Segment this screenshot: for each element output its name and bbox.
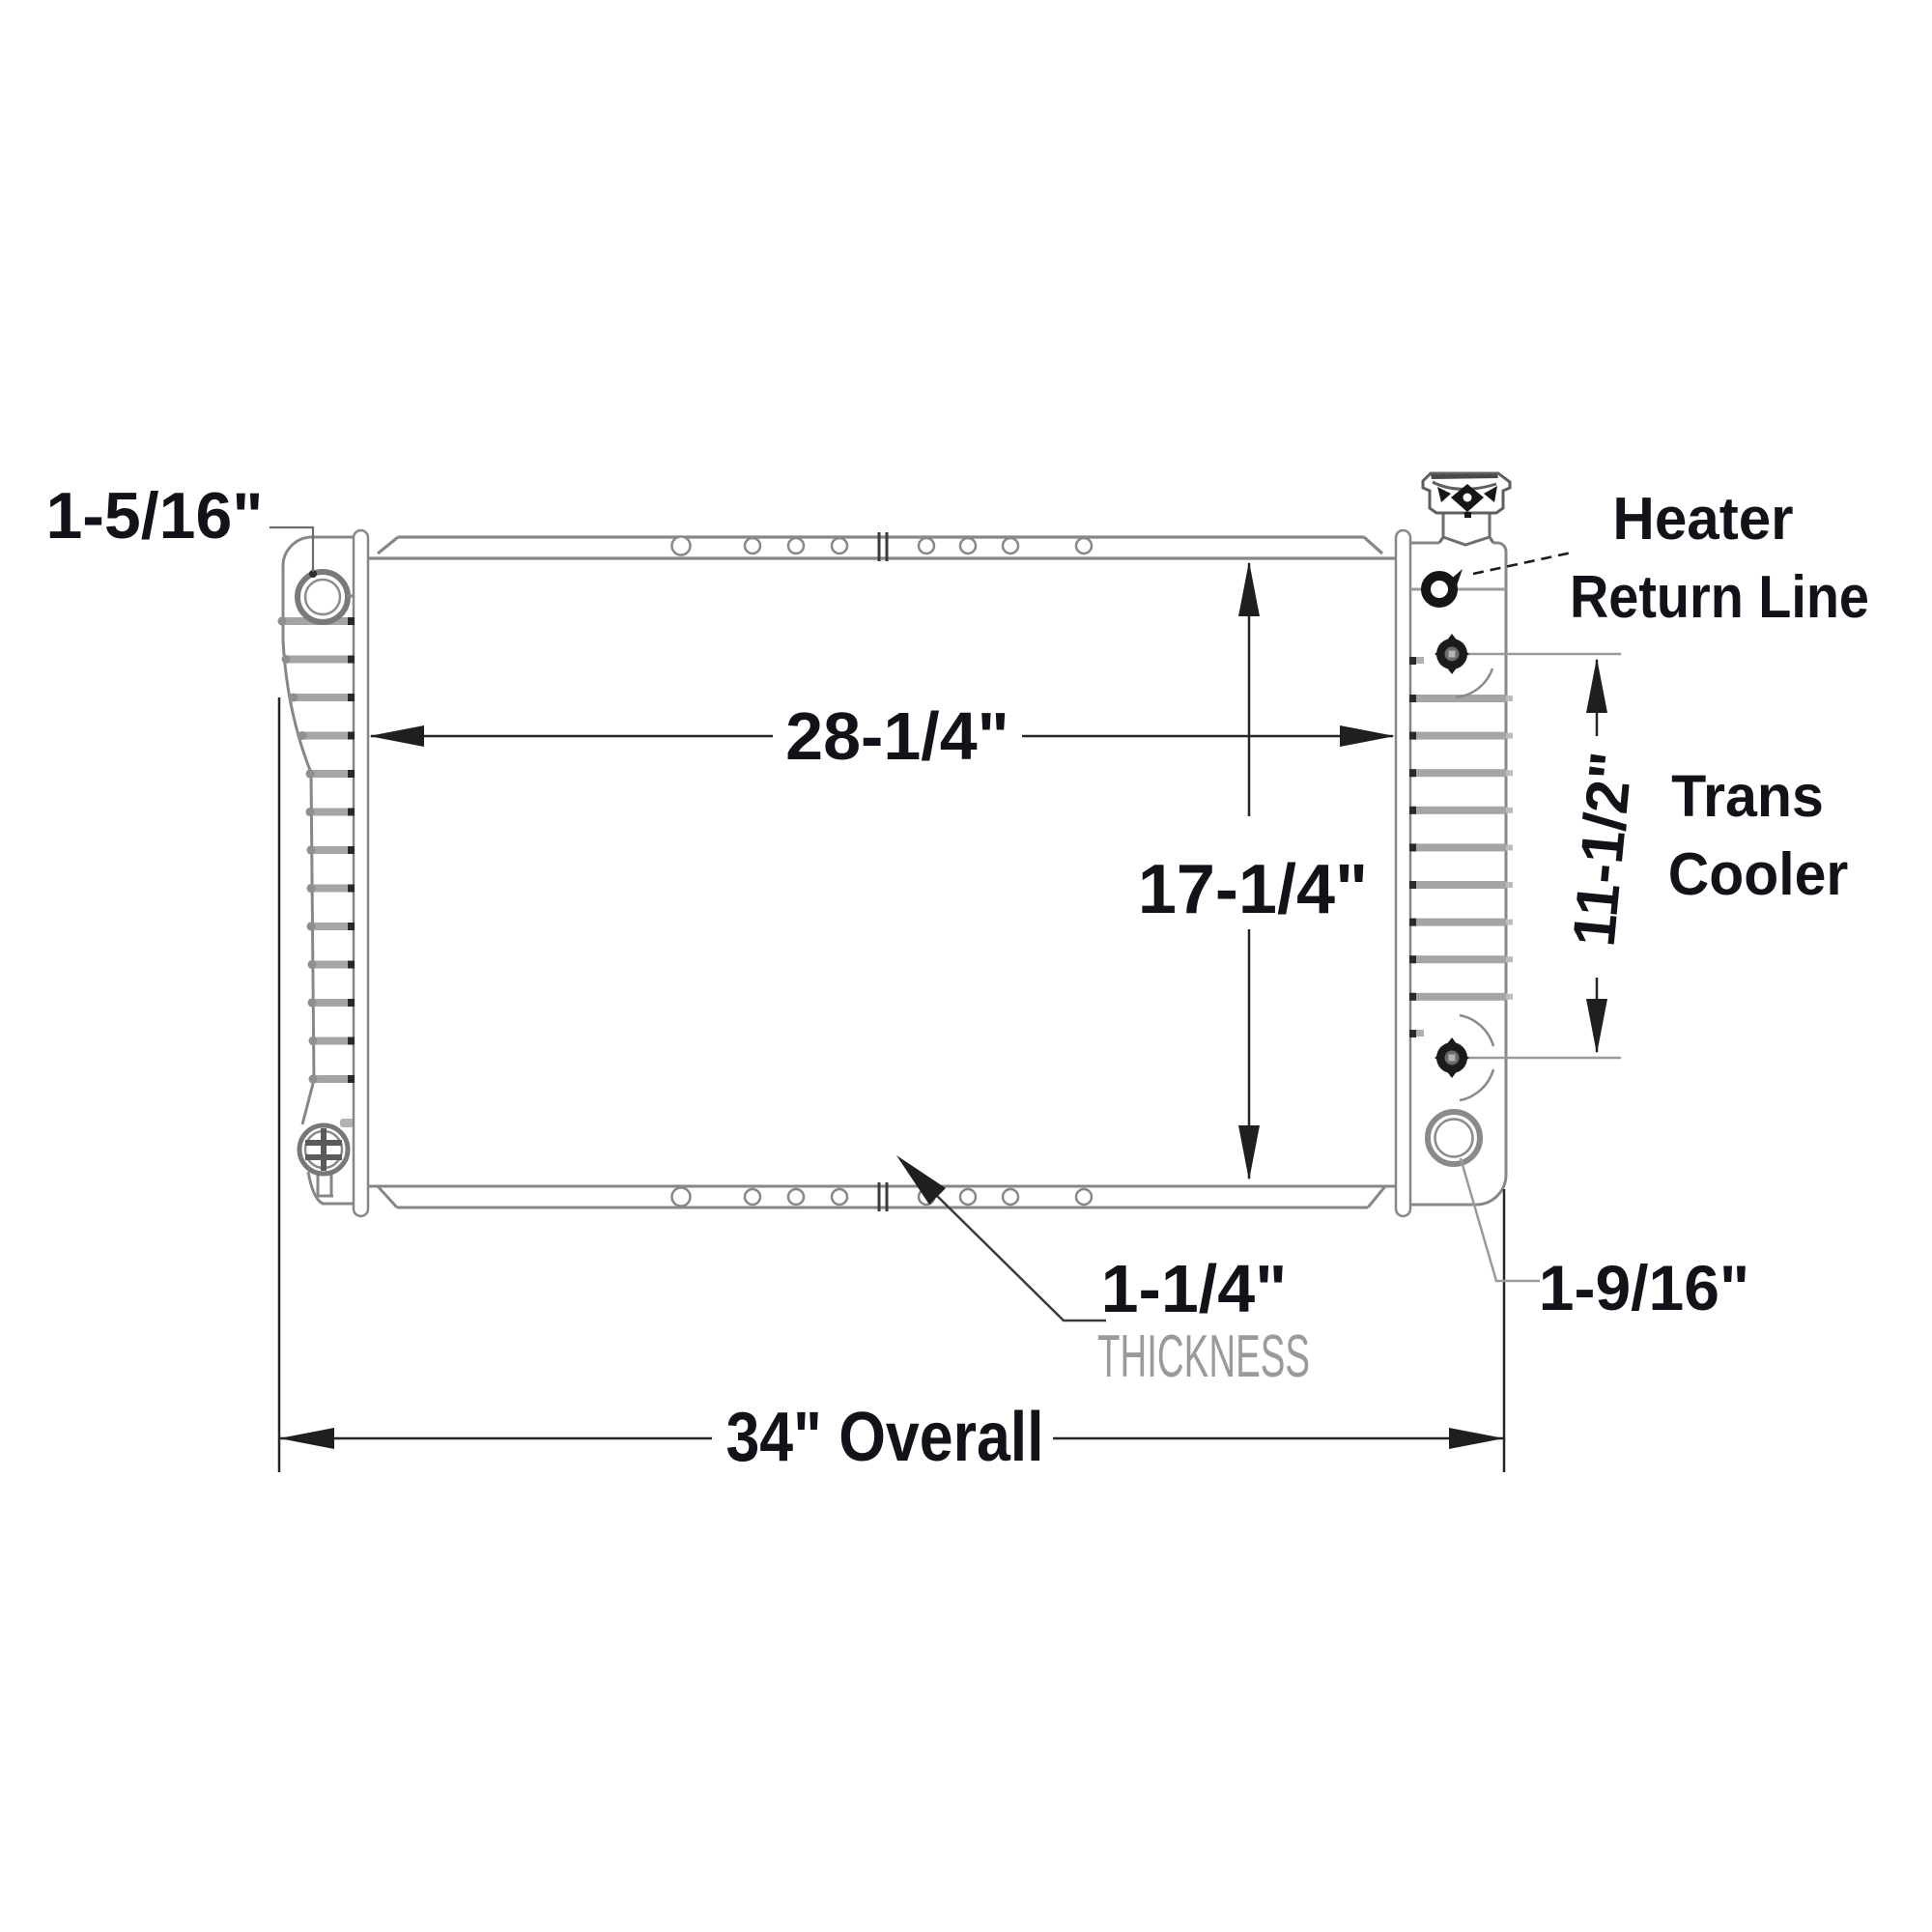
svg-text:11-1/2": 11-1/2" bbox=[1561, 749, 1646, 949]
svg-text:Trans: Trans bbox=[1671, 763, 1824, 829]
svg-text:1-1/4": 1-1/4" bbox=[1101, 1251, 1288, 1326]
svg-text:28-1/4": 28-1/4" bbox=[785, 698, 1009, 774]
svg-text:THICKNESS: THICKNESS bbox=[1097, 1322, 1310, 1390]
svg-text:Cooler: Cooler bbox=[1668, 840, 1848, 908]
svg-text:34" Overall: 34" Overall bbox=[725, 1399, 1043, 1476]
svg-text:Heater: Heater bbox=[1612, 485, 1793, 552]
svg-text:1-9/16": 1-9/16" bbox=[1539, 1252, 1749, 1323]
svg-text:17-1/4": 17-1/4" bbox=[1138, 851, 1368, 928]
svg-text:1-5/16": 1-5/16" bbox=[45, 479, 263, 553]
svg-text:Return Line: Return Line bbox=[1570, 564, 1869, 630]
